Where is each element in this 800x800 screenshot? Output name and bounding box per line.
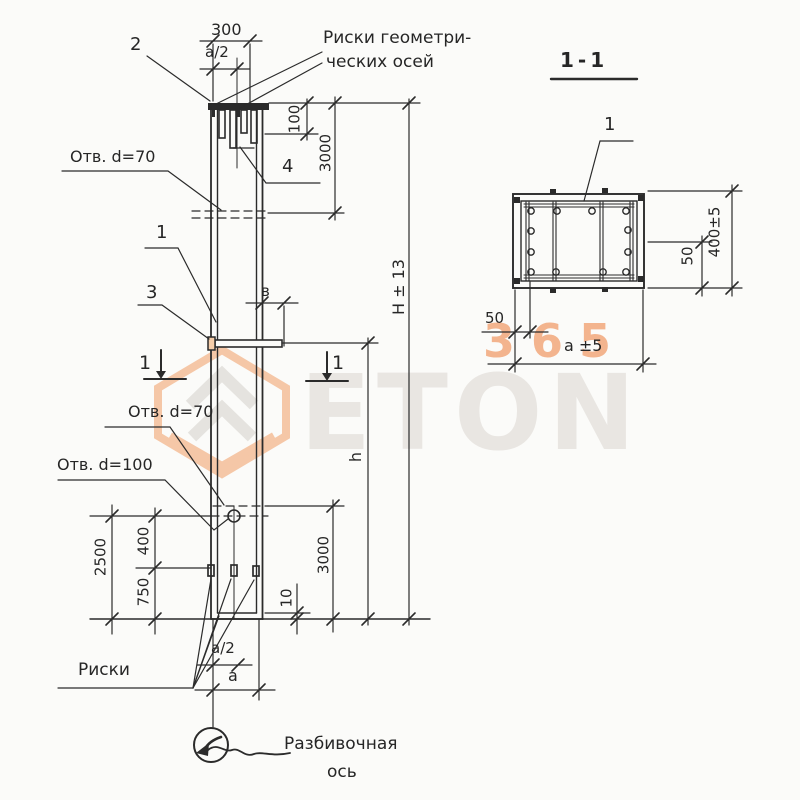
callout-otv100: Отв. d=100 — [57, 457, 153, 473]
dim-H: H ± 13 — [391, 259, 407, 315]
callout-os: ось — [327, 764, 357, 781]
dim-750-left: 750 — [137, 578, 152, 607]
dim-a2-top: а/2 — [205, 45, 229, 60]
dim-10: 10 — [280, 588, 295, 607]
dim-a-pm5: а ±5 — [564, 338, 602, 354]
dim-3000-top: 3000 — [319, 134, 334, 172]
label-mark4: 4 — [282, 158, 293, 176]
cut-label-left: 1 — [139, 354, 151, 373]
callout-riski-bottom: Риски — [78, 662, 130, 679]
dim-a2-bottom: а/2 — [211, 641, 235, 656]
dim-3000-bottom: 3000 — [317, 536, 332, 574]
dim-400-left: 400 — [137, 527, 152, 556]
callout-otv70-bottom: Отв. d=70 — [128, 404, 213, 420]
dim-400pm5: 400±5 — [708, 207, 723, 258]
dim-300: 300 — [211, 22, 242, 38]
dim-50-right: 50 — [681, 246, 696, 265]
label-mark2: 2 — [130, 36, 141, 54]
dim-v: в — [261, 284, 270, 299]
label-mark1: 1 — [156, 224, 167, 242]
callout-riski-geo-line2: ческих осей — [326, 54, 434, 71]
drawing-linework — [0, 0, 800, 800]
callout-riski-geo-line1: Риски геометри- — [323, 30, 471, 47]
section-cut-marks — [144, 350, 348, 381]
dim-100-top: 100 — [288, 105, 303, 134]
dim-a-bottom: а — [228, 668, 238, 684]
drawing-sheet: ETON 365 — [0, 0, 800, 800]
section-title: 1-1 — [560, 50, 608, 70]
label-mark3: 3 — [146, 284, 157, 302]
section-label-mark1: 1 — [604, 116, 615, 134]
dim-h: h — [348, 452, 364, 462]
dim-2500: 2500 — [94, 538, 109, 576]
axis-symbol — [194, 728, 290, 762]
column-elevation — [192, 58, 282, 619]
cut-label-right: 1 — [332, 354, 344, 373]
dimension-lines — [90, 35, 430, 727]
callout-razbivochnaya: Разбивочная — [284, 736, 397, 753]
callout-otv70-top: Отв. d=70 — [70, 149, 155, 165]
dim-50-left: 50 — [485, 311, 504, 326]
